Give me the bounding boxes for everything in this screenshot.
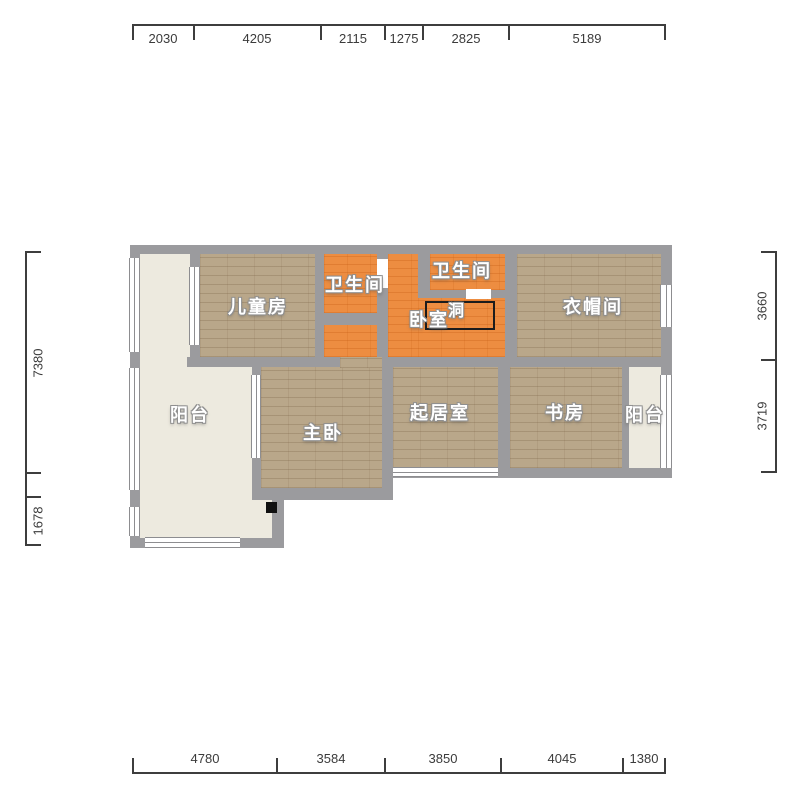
label-balcony-left: 阳台 bbox=[170, 401, 210, 427]
dim-value: 2825 bbox=[452, 31, 481, 46]
window-left-foot bbox=[129, 507, 140, 536]
label-study: 书房 bbox=[545, 399, 585, 425]
wall-master-right bbox=[382, 357, 393, 500]
floor-plan-page: { "title": "apartment-floor-plan", "colo… bbox=[0, 0, 800, 800]
dim-tick bbox=[25, 544, 41, 546]
dim-tick bbox=[276, 758, 278, 774]
wall-children-bathroom bbox=[315, 253, 324, 357]
dim-tick bbox=[500, 758, 502, 774]
dim-tick bbox=[132, 24, 134, 40]
label-cloakroom: 衣帽间 bbox=[563, 293, 623, 319]
dim-tick bbox=[193, 24, 195, 40]
dim-value: 4045 bbox=[548, 751, 577, 766]
dim-line bbox=[775, 252, 777, 472]
dim-tick bbox=[132, 758, 134, 774]
window-master-left bbox=[251, 375, 261, 458]
dim-tick bbox=[384, 24, 386, 40]
label-balcony-right: 阳台 bbox=[625, 401, 665, 427]
wall-left-low-block bbox=[130, 493, 140, 507]
dim-tick bbox=[664, 758, 666, 774]
dim-value: 3719 bbox=[755, 402, 770, 431]
dim-tick bbox=[761, 251, 777, 253]
dim-value: 1380 bbox=[630, 751, 659, 766]
wall-left-mid-block bbox=[130, 352, 140, 368]
dim-value: 4780 bbox=[191, 751, 220, 766]
column-marker bbox=[266, 502, 277, 513]
label-bedroom: 卧室 bbox=[409, 306, 449, 332]
label-master-bedroom: 主卧 bbox=[303, 419, 343, 445]
dim-tick bbox=[508, 24, 510, 40]
dim-tick bbox=[25, 472, 41, 474]
wall-bathroom1-bottom bbox=[315, 313, 388, 325]
wall-living-study bbox=[498, 357, 510, 478]
label-hole: 洞 bbox=[448, 297, 466, 321]
dim-tick bbox=[320, 24, 322, 40]
dim-tick bbox=[761, 471, 777, 473]
dim-tick bbox=[422, 24, 424, 40]
dim-tick bbox=[384, 758, 386, 774]
wall-mid-left bbox=[187, 357, 340, 367]
floor-balcony-left-main bbox=[140, 357, 252, 538]
dim-value: 2030 bbox=[149, 31, 178, 46]
dim-tick bbox=[622, 758, 624, 774]
wall-bedroom-cloakroom bbox=[505, 253, 517, 367]
window-balcony-children bbox=[189, 267, 200, 345]
dim-value: 4205 bbox=[243, 31, 272, 46]
door-bathroom-2 bbox=[466, 289, 491, 299]
window-living-bottom bbox=[393, 467, 498, 477]
dim-tick bbox=[25, 496, 41, 498]
dim-value: 7380 bbox=[31, 349, 46, 378]
label-bathroom-1: 卫生间 bbox=[325, 271, 385, 297]
dim-tick bbox=[25, 251, 41, 253]
dim-value: 3660 bbox=[755, 292, 770, 321]
dim-value: 5189 bbox=[573, 31, 602, 46]
dim-line bbox=[25, 252, 27, 545]
dim-line bbox=[133, 24, 665, 26]
floor-balcony-left-top bbox=[140, 254, 190, 357]
window-balcony-bottom bbox=[145, 537, 240, 548]
wall-mid-right bbox=[382, 357, 661, 367]
dim-tick bbox=[761, 359, 777, 361]
dim-value: 1678 bbox=[31, 507, 46, 536]
dim-tick bbox=[664, 24, 666, 40]
dim-value: 1275 bbox=[390, 31, 419, 46]
label-bathroom-2: 卫生间 bbox=[432, 257, 492, 283]
dim-value: 3584 bbox=[317, 751, 346, 766]
floor-master-door-gap bbox=[340, 357, 382, 368]
dim-value: 2115 bbox=[339, 31, 367, 46]
window-left-upper bbox=[129, 258, 140, 352]
dim-value: 3850 bbox=[429, 751, 458, 766]
window-left-lower bbox=[129, 368, 140, 490]
floorplan: 儿童房卫生间卫生间卧室洞衣帽间阳台主卧起居室书房阳台 2030420521151… bbox=[0, 0, 800, 800]
dim-line bbox=[133, 772, 665, 774]
label-children-room: 儿童房 bbox=[228, 293, 288, 319]
wall-top bbox=[130, 245, 672, 254]
label-living-room: 起居室 bbox=[410, 399, 470, 425]
window-cloakroom-right bbox=[660, 285, 672, 327]
